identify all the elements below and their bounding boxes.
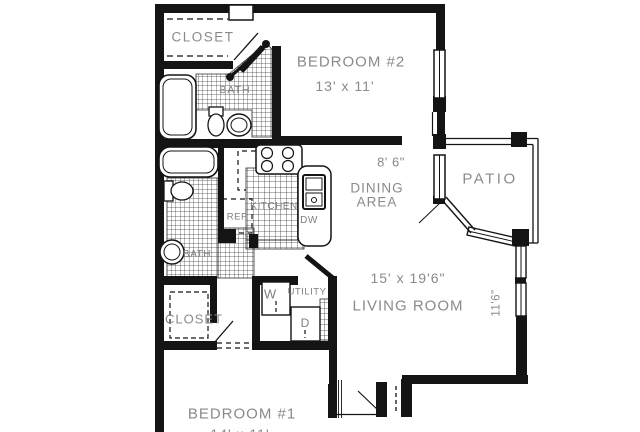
label-closet1: CLOSET — [165, 313, 223, 326]
floor-plan: CLOSET BEDROOM #2 13' x 11' BATH 8' 6" D… — [0, 0, 640, 432]
label-bedroom1-dims: 14' x 11' — [210, 427, 269, 432]
stove-icon — [256, 145, 302, 174]
utility-angled-wall — [306, 256, 334, 279]
pedestal-sink2-icon — [160, 240, 184, 264]
label-bedroom2-dims: 13' x 11' — [315, 79, 374, 93]
label-dining-line2: AREA — [357, 195, 398, 209]
label-dryer: D — [301, 317, 310, 329]
label-living-wall-dim: 11'6" — [491, 289, 503, 316]
living-room-window-upper — [434, 155, 445, 199]
label-living-dims: 15' x 19'6" — [370, 271, 445, 285]
toilet1-icon — [208, 107, 224, 136]
patio-post-bottom — [512, 229, 529, 246]
label-closet2: CLOSET — [171, 30, 234, 44]
patio-door — [419, 197, 475, 233]
label-dining-line1: DINING — [350, 181, 403, 195]
sink1-icon — [227, 114, 251, 136]
label-patio: PATIO — [462, 172, 517, 187]
bathtub2-icon — [159, 147, 218, 177]
label-bedroom1: BEDROOM #1 — [188, 407, 296, 422]
entry-door-area — [328, 379, 412, 418]
label-utility: UTILITY — [288, 287, 327, 297]
patio-post-top — [511, 132, 527, 147]
kitchen-sink-icon — [303, 175, 325, 209]
label-dining-width: 8' 6" — [377, 156, 405, 169]
bathtub1-icon — [159, 75, 196, 139]
label-kitchen: KITCHEN — [250, 202, 297, 212]
label-bedroom2: BEDROOM #2 — [297, 55, 405, 70]
label-dw: DW — [300, 216, 318, 226]
bedroom1-door-opening — [217, 343, 258, 348]
label-ref: REF — [227, 212, 248, 222]
label-bath1: BATH — [219, 85, 250, 96]
label-living: LIVING ROOM — [352, 299, 463, 314]
patio-railing — [446, 139, 538, 244]
label-washer: W — [264, 288, 276, 301]
toilet2-icon — [164, 181, 193, 201]
label-bath2: BATH — [183, 250, 211, 260]
